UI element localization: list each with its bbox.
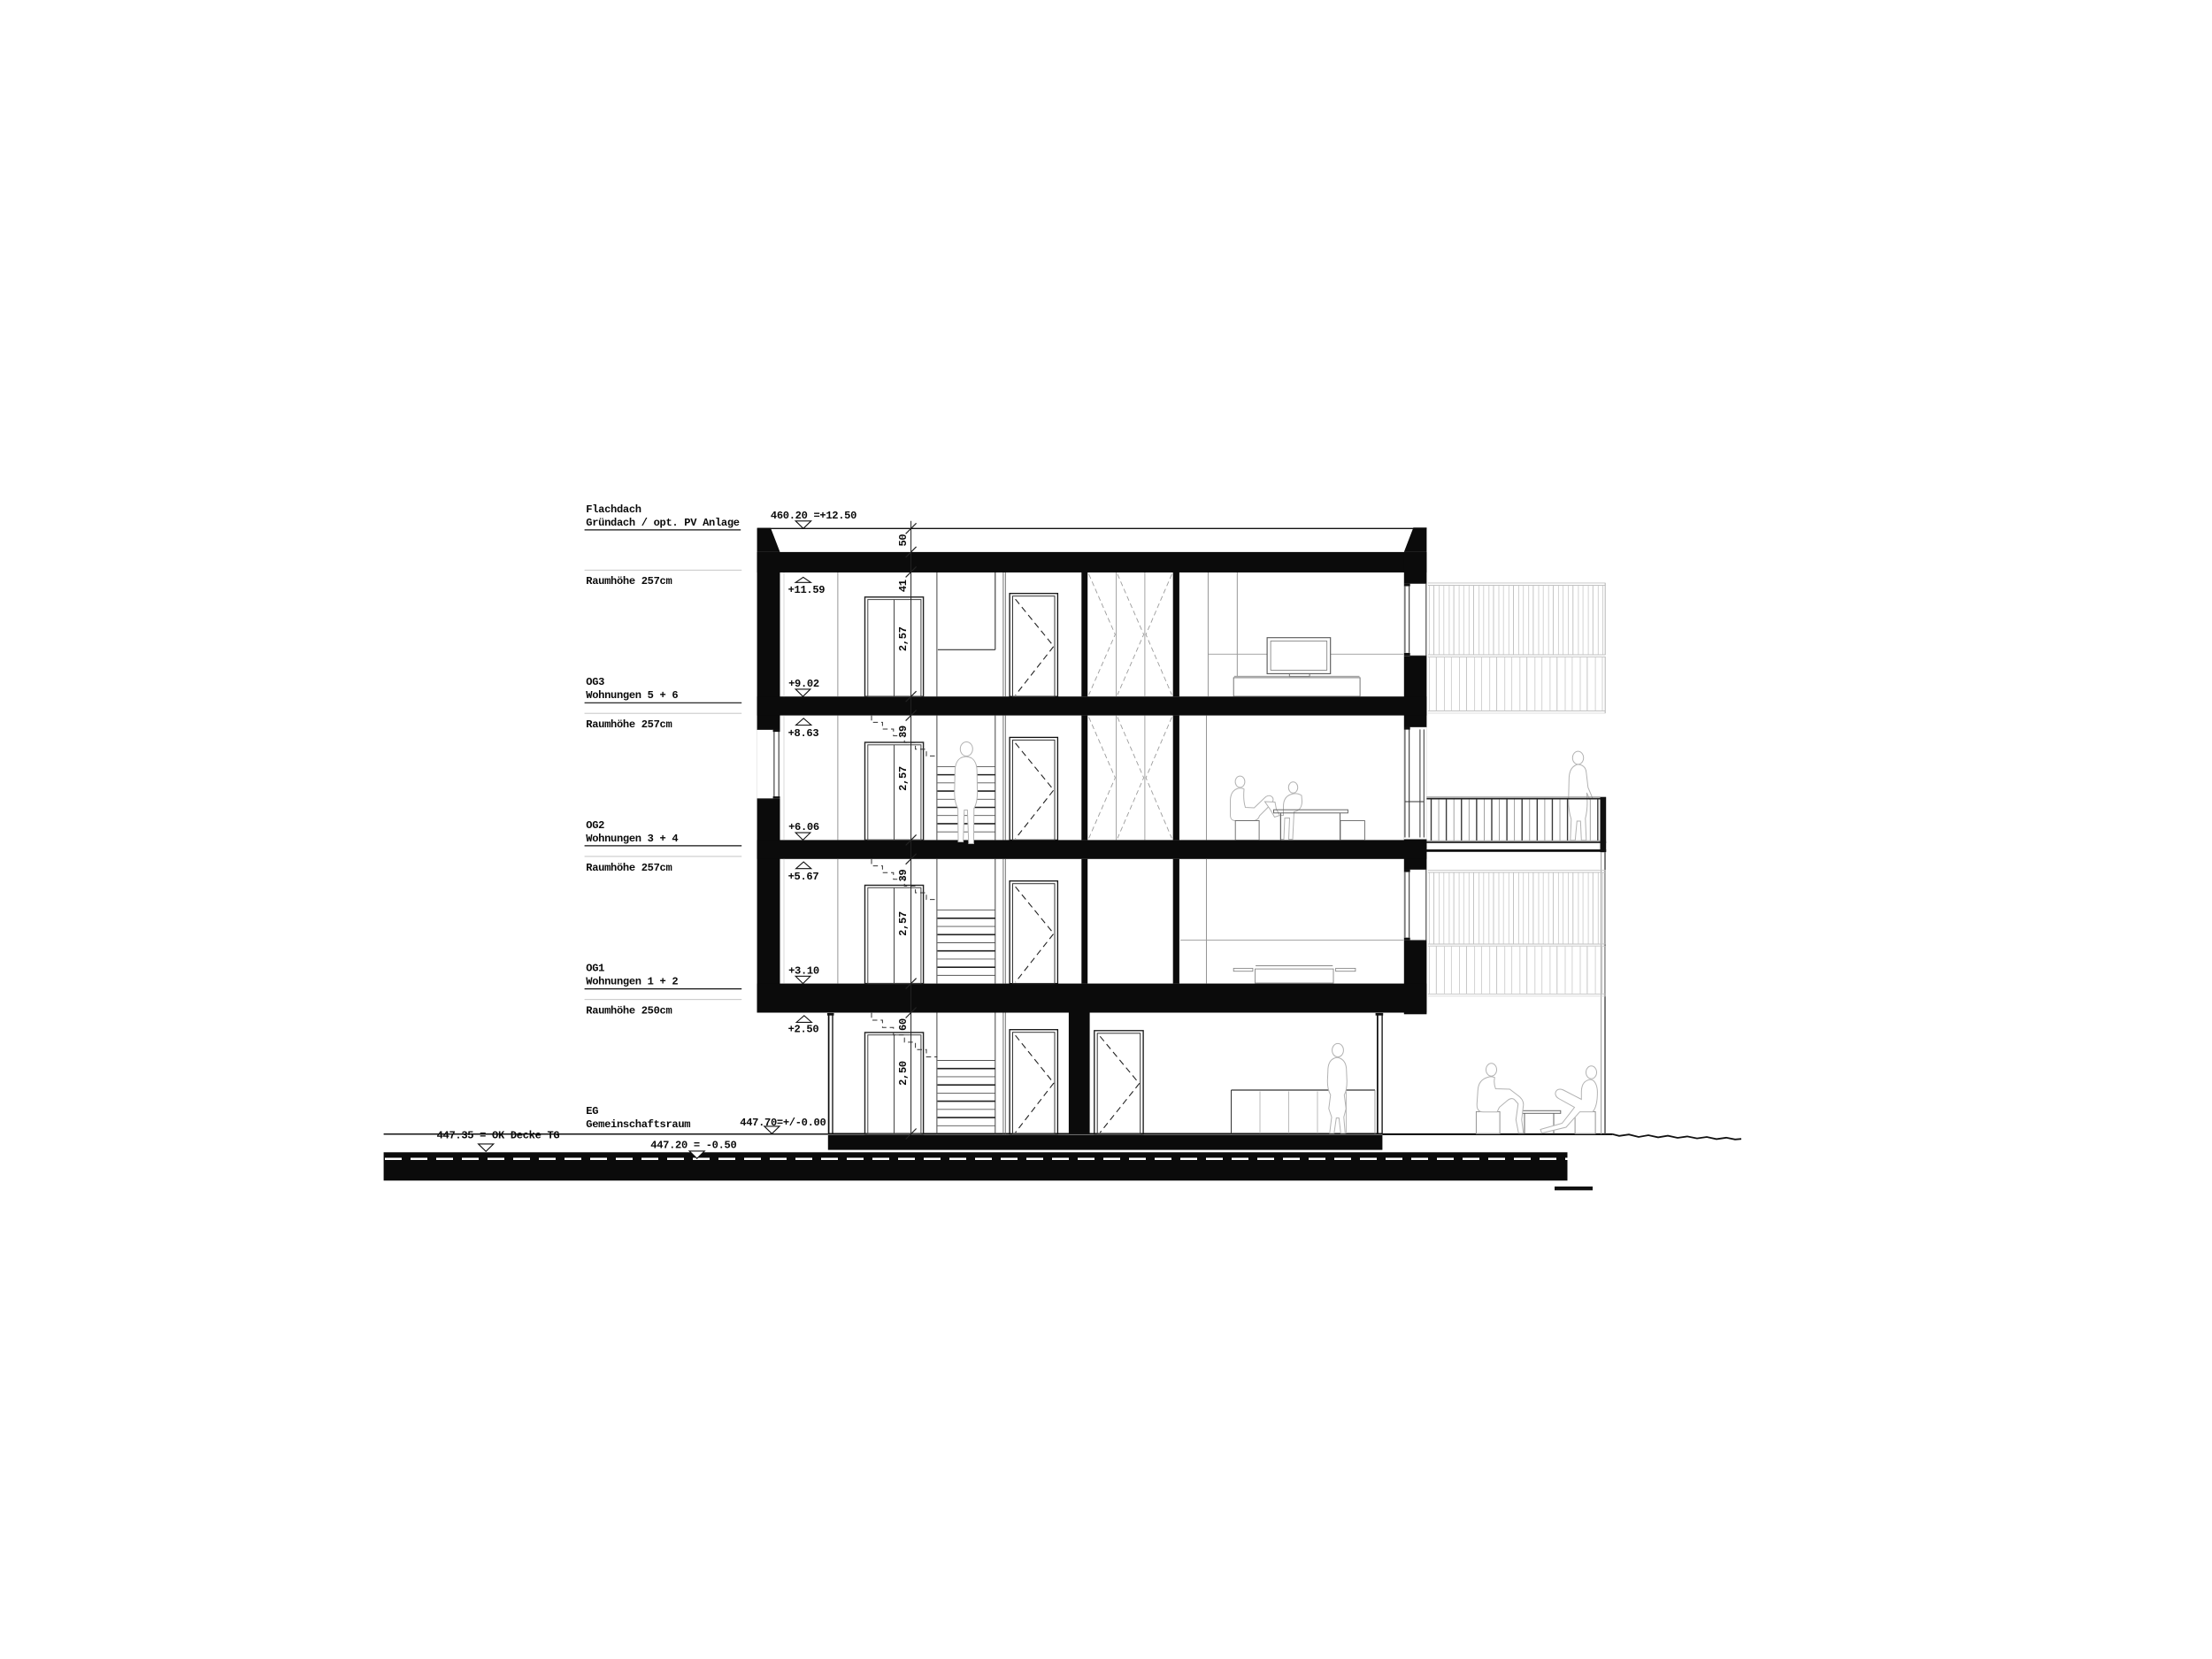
svg-text:2,57: 2,57 — [897, 626, 910, 651]
svg-text:+9.02: +9.02 — [788, 678, 819, 690]
svg-text:+8.63: +8.63 — [788, 727, 819, 740]
svg-text:Wohnungen 1 + 2: Wohnungen 1 + 2 — [586, 976, 678, 988]
svg-text:EG: EG — [586, 1105, 598, 1118]
svg-text:+6.06: +6.06 — [788, 821, 819, 833]
svg-text:2,57: 2,57 — [897, 766, 910, 791]
svg-text:Raumhöhe 257cm: Raumhöhe 257cm — [586, 718, 672, 731]
svg-text:447.70=+/-0.00: 447.70=+/-0.00 — [740, 1117, 826, 1129]
svg-text:460.20 =+12.50: 460.20 =+12.50 — [771, 510, 856, 522]
svg-text:Gründach / opt. PV Anlage: Gründach / opt. PV Anlage — [586, 517, 739, 529]
svg-text:41: 41 — [897, 580, 910, 592]
svg-text:Wohnungen 3 + 4: Wohnungen 3 + 4 — [586, 833, 678, 845]
svg-text:Wohnungen 5 + 6: Wohnungen 5 + 6 — [586, 689, 678, 702]
svg-text:OG1: OG1 — [586, 962, 604, 974]
svg-text:Raumhöhe 250cm: Raumhöhe 250cm — [586, 1005, 672, 1018]
svg-text:50: 50 — [897, 534, 910, 547]
svg-text:Raumhöhe 257cm: Raumhöhe 257cm — [586, 862, 672, 874]
svg-text:Gemeinschaftsraum: Gemeinschaftsraum — [586, 1118, 690, 1131]
svg-text:+11.59: +11.59 — [788, 584, 826, 596]
svg-text:OG2: OG2 — [586, 819, 604, 832]
svg-text:447.35 = OK Decke TG: 447.35 = OK Decke TG — [437, 1130, 560, 1142]
svg-text:+5.67: +5.67 — [788, 871, 819, 883]
svg-text:2,57: 2,57 — [897, 911, 910, 936]
svg-text:OG3: OG3 — [586, 676, 604, 688]
svg-text:39: 39 — [897, 726, 910, 738]
svg-text:2,50: 2,50 — [897, 1061, 910, 1086]
svg-text:+3.10: +3.10 — [788, 964, 819, 977]
svg-text:447.20 = -0.50: 447.20 = -0.50 — [650, 1139, 736, 1151]
svg-text:Flachdach: Flachdach — [586, 503, 641, 516]
svg-text:+2.50: +2.50 — [788, 1023, 819, 1035]
svg-text:39: 39 — [897, 870, 910, 882]
svg-text:60: 60 — [897, 1018, 910, 1031]
svg-text:Raumhöhe 257cm: Raumhöhe 257cm — [586, 575, 672, 588]
